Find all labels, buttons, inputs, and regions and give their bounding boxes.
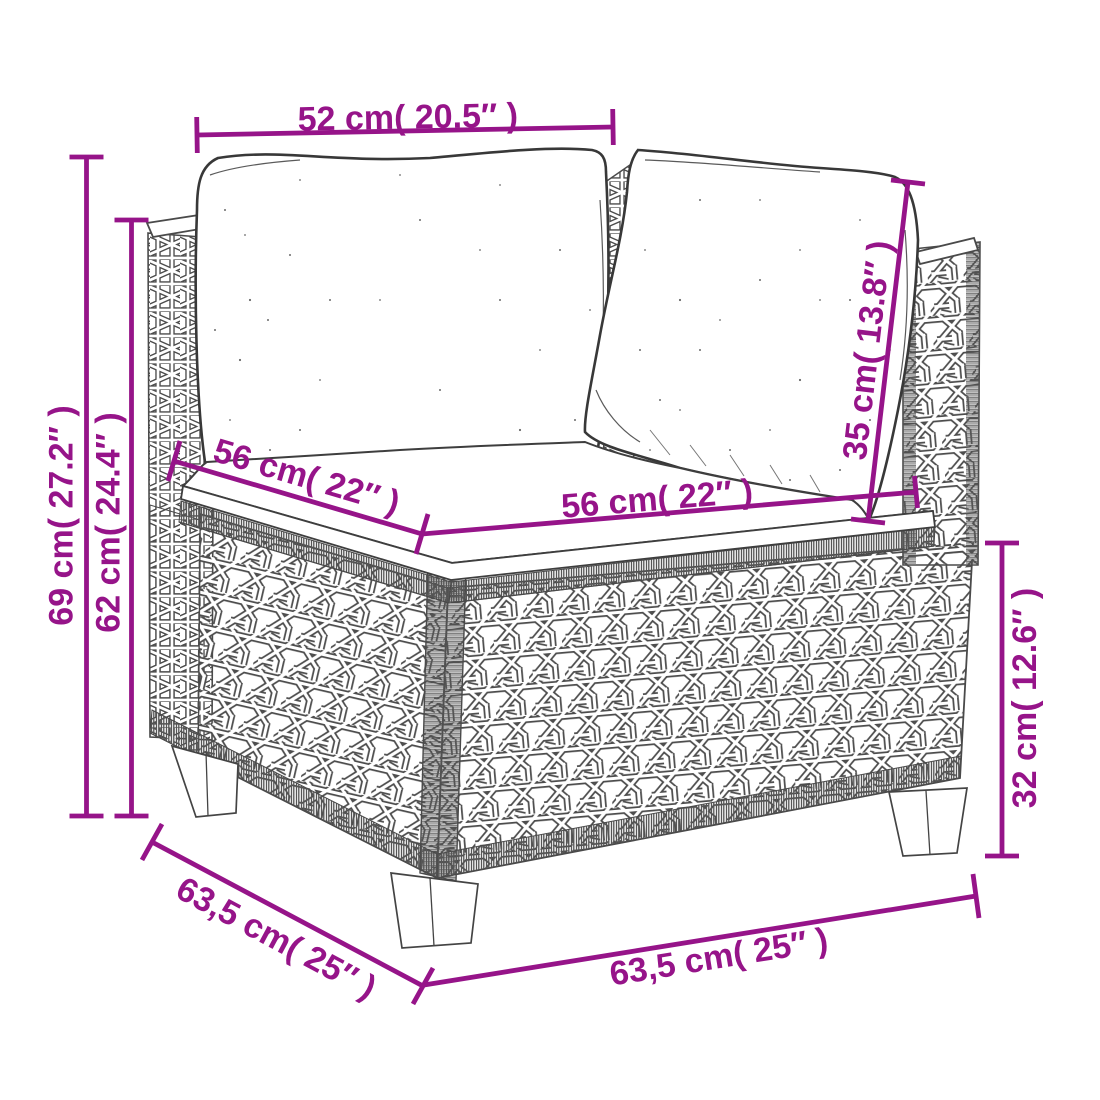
svg-text:32 cm( 12.6″ ): 32 cm( 12.6″ ) [1006,588,1044,808]
svg-text:52 cm( 20.5″ ): 52 cm( 20.5″ ) [297,96,518,138]
svg-text:69 cm( 27.2″ ): 69 cm( 27.2″ ) [43,405,81,625]
svg-text:62 cm( 24.4″ ): 62 cm( 24.4″ ) [90,412,128,632]
